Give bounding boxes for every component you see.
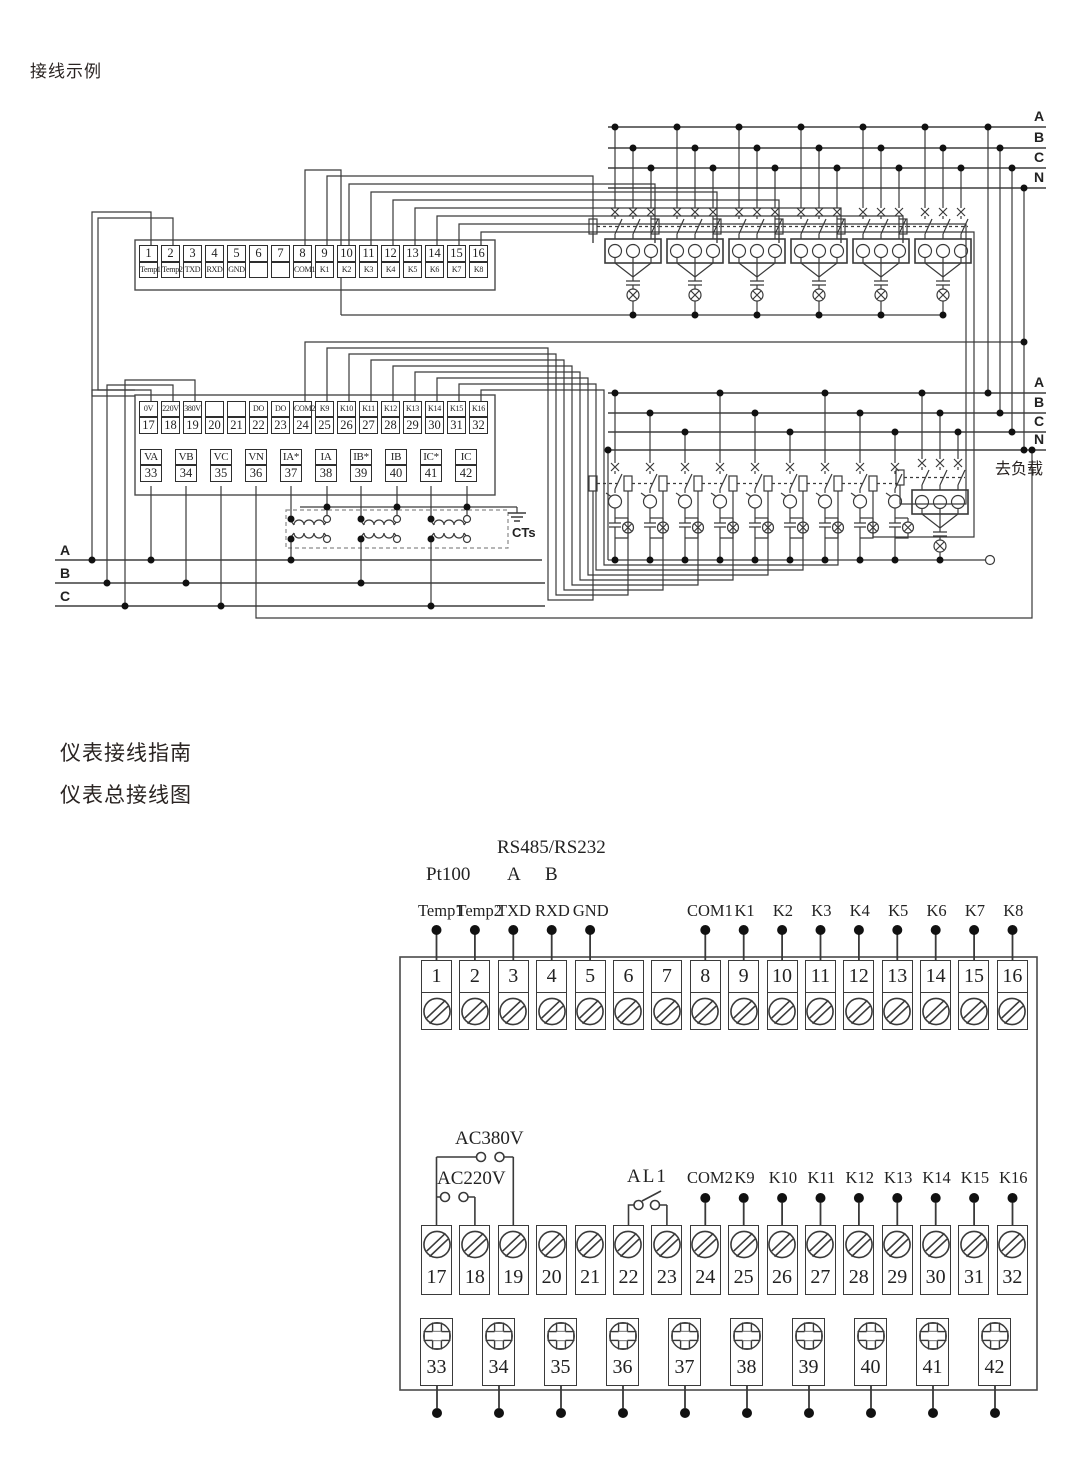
bus-label-b-mid: B <box>1034 394 1044 410</box>
terminal-number: 21 <box>575 1262 606 1295</box>
strip-1-16: 1 2 3 4 5 6 7 8 9 10 <box>421 960 1028 1030</box>
screw-terminal: 21 <box>575 1225 606 1295</box>
terminal-number: 8 <box>690 960 721 993</box>
cross-screw-icon <box>792 1318 825 1352</box>
screw-head-icon <box>690 1225 721 1262</box>
terminal-label: IB* <box>350 449 372 465</box>
screw-head-icon <box>421 1225 452 1262</box>
terminal-number: 10 <box>337 245 356 262</box>
screw-terminal: 2 <box>459 960 490 1030</box>
terminal-number: 21 <box>227 417 246 434</box>
screw-head-icon <box>920 1225 951 1262</box>
ac380v-label: AC380V <box>455 1128 524 1150</box>
current-terminal: 35 <box>544 1318 577 1386</box>
terminal-number: 17 <box>421 1262 452 1295</box>
terminal-row-33-42: VA 33 VB 34 VC 35 VN 36 IA* 37 IA 38 IB*… <box>140 449 477 482</box>
guide-title: 仪表接线指南 <box>60 737 192 767</box>
screw-head-icon <box>958 993 989 1030</box>
pin-label: K16 <box>994 1168 1032 1188</box>
terminal-label: K11 <box>359 401 378 417</box>
pin-label: K2 <box>764 901 802 921</box>
al1-contact <box>629 1191 667 1226</box>
pin-label: K1 <box>725 901 763 921</box>
terminal-number: 7 <box>651 960 682 993</box>
terminal-number: 5 <box>227 245 246 262</box>
terminal-label <box>227 401 246 417</box>
screw-head-icon <box>843 1225 874 1262</box>
screw-head-icon <box>613 1225 644 1262</box>
current-terminal: 41 <box>916 1318 949 1386</box>
terminal-number: 32 <box>997 1262 1028 1295</box>
screw-terminal: 31 <box>958 1225 989 1295</box>
terminal-number: 29 <box>403 417 422 434</box>
phase-label-b: B <box>60 565 70 581</box>
terminal-label: K10 <box>337 401 356 417</box>
terminal-number: 16 <box>469 245 488 262</box>
terminal-label: VA <box>140 449 162 465</box>
screw-head-icon <box>882 993 913 1030</box>
terminal-label: K15 <box>447 401 466 417</box>
current-terminal: 39 <box>792 1318 825 1386</box>
screw-head-icon <box>920 993 951 1030</box>
current-terminal: 37 <box>668 1318 701 1386</box>
pin-label: K6 <box>917 901 955 921</box>
terminal-number: 13 <box>403 245 422 262</box>
terminal-number: 8 <box>293 245 312 262</box>
terminal-number: 20 <box>536 1262 567 1295</box>
screw-head-icon <box>651 993 682 1030</box>
terminal-number: 35 <box>210 465 232 482</box>
screw-terminal: 30 <box>920 1225 951 1295</box>
screw-terminal: 24 <box>690 1225 721 1295</box>
terminal-cell: 4 RXD <box>205 245 224 278</box>
terminal-label: DO <box>249 401 268 417</box>
terminal-number: 2 <box>161 245 180 262</box>
terminal-label: 220V <box>161 401 180 417</box>
terminal-cell: IB 40 <box>385 449 407 482</box>
screw-head-icon <box>805 1225 836 1262</box>
cross-screw-icon <box>730 1318 763 1352</box>
terminal-cell: K14 30 <box>425 401 444 434</box>
terminal-cell: VC 35 <box>210 449 232 482</box>
terminal-label: IA <box>315 449 337 465</box>
cross-screw-icon <box>854 1318 887 1352</box>
terminal-number: 36 <box>606 1352 639 1386</box>
terminal-cell: IC* 41 <box>420 449 442 482</box>
screw-head-icon <box>690 993 721 1030</box>
current-terminal: 33 <box>420 1318 453 1386</box>
bus-label-n-mid: N <box>1034 431 1044 447</box>
terminal-number: 34 <box>482 1352 515 1386</box>
terminal-number: 3 <box>498 960 529 993</box>
bus-drop-dots <box>985 124 1028 454</box>
terminal-number: 27 <box>805 1262 836 1295</box>
terminal-number: 9 <box>315 245 334 262</box>
screw-terminal: 5 <box>575 960 606 1030</box>
terminal-label: DO <box>271 401 290 417</box>
terminal-number: 33 <box>420 1352 453 1386</box>
terminal-number: 4 <box>205 245 224 262</box>
left-phase-lines <box>55 560 545 606</box>
pin-label: GND <box>572 901 610 921</box>
terminal-number: 6 <box>249 245 268 262</box>
pin-label: K8 <box>994 901 1032 921</box>
screw-head-icon <box>536 993 567 1030</box>
terminal-number: 29 <box>882 1262 913 1295</box>
rs-a-label: A <box>507 864 521 886</box>
terminal-number: 28 <box>381 417 400 434</box>
terminal-number: 36 <box>245 465 267 482</box>
terminal-cell: IA 38 <box>315 449 337 482</box>
terminal-cell: 380V 19 <box>183 401 202 434</box>
screw-terminal: 18 <box>459 1225 490 1295</box>
terminal-number: 40 <box>854 1352 887 1386</box>
terminal-label: IC* <box>420 449 442 465</box>
cross-screw-icon <box>420 1318 453 1352</box>
pin-label: COM2 <box>687 1168 725 1188</box>
screw-terminal: 3 <box>498 960 529 1030</box>
terminal-label: K14 <box>425 401 444 417</box>
strip-17-32: 17 18 19 20 21 22 23 24 25 26 <box>421 1225 1028 1295</box>
terminal-number: 6 <box>613 960 644 993</box>
terminal-cell: 12 K4 <box>381 245 400 278</box>
terminal-number: 11 <box>359 245 378 262</box>
terminal-cell: 15 K7 <box>447 245 466 278</box>
screw-head-icon <box>728 993 759 1030</box>
screw-terminal: 27 <box>805 1225 836 1295</box>
terminal-label: K8 <box>469 262 488 278</box>
terminal-label: VB <box>175 449 197 465</box>
terminal-number: 42 <box>978 1352 1011 1386</box>
terminal-label: K16 <box>469 401 488 417</box>
diagram-title: 仪表总接线图 <box>60 779 192 809</box>
pin-label: K10 <box>764 1168 802 1188</box>
ct-units <box>291 520 467 538</box>
terminal-number: 38 <box>315 465 337 482</box>
terminal-number: 28 <box>843 1262 874 1295</box>
terminal-cell: 0V 17 <box>139 401 158 434</box>
terminal-label: VC <box>210 449 232 465</box>
page-title: 接线示例 <box>30 57 102 82</box>
terminal-label: K9 <box>315 401 334 417</box>
screw-terminal: 10 <box>767 960 798 1030</box>
terminal-cell: IC 42 <box>455 449 477 482</box>
screw-head-icon <box>843 993 874 1030</box>
terminal-number: 33 <box>140 465 162 482</box>
terminal-number: 24 <box>690 1262 721 1295</box>
terminal-number: 2 <box>459 960 490 993</box>
terminal-label: K5 <box>403 262 422 278</box>
terminal-number: 24 <box>293 417 312 434</box>
terminal-number: 15 <box>447 245 466 262</box>
terminal-cell: K13 29 <box>403 401 422 434</box>
terminal-label: IB <box>385 449 407 465</box>
screw-head-icon <box>997 993 1028 1030</box>
pin-label: K11 <box>802 1168 840 1188</box>
top-bus-lines <box>608 127 1046 450</box>
pin-label: K5 <box>879 901 917 921</box>
terminal-label: K12 <box>381 401 400 417</box>
starter-bank-top <box>589 127 971 309</box>
terminal-number: 11 <box>805 960 836 993</box>
cross-screw-icon <box>668 1318 701 1352</box>
screw-terminal: 8 <box>690 960 721 1030</box>
cross-screw-icon <box>916 1318 949 1352</box>
screw-terminal: 11 <box>805 960 836 1030</box>
screw-head-icon <box>805 993 836 1030</box>
ac220v-label: AC220V <box>437 1168 506 1190</box>
pin-label: K14 <box>917 1168 955 1188</box>
screw-terminal: 16 <box>997 960 1028 1030</box>
cross-screw-icon <box>544 1318 577 1352</box>
screw-terminal: 19 <box>498 1225 529 1295</box>
screw-head-icon <box>536 1225 567 1262</box>
terminal-cell: VN 36 <box>245 449 267 482</box>
terminal-row-1-16: 1 Temp1 2 Temp2 3 TXD 4 RXD 5 GND 6 7 8 … <box>139 245 488 278</box>
terminal-number: 30 <box>425 417 444 434</box>
terminal-number: 5 <box>575 960 606 993</box>
al1-label: AL1 <box>627 1166 668 1188</box>
terminal-cell: VB 34 <box>175 449 197 482</box>
screw-head-icon <box>498 993 529 1030</box>
pin-label: Temp1 <box>418 901 456 921</box>
terminal-number: 25 <box>728 1262 759 1295</box>
terminal-label: K3 <box>359 262 378 278</box>
terminal-number: 10 <box>767 960 798 993</box>
bus-label-b-top: B <box>1034 129 1044 145</box>
schematic-page: 接线示例 1 Temp1 2 Temp2 3 TXD 4 RXD 5 GND 6… <box>0 0 1080 1471</box>
phase-label-a: A <box>60 542 70 558</box>
terminal-label: GND <box>227 262 246 278</box>
screw-head-icon <box>767 1225 798 1262</box>
terminal-number: 42 <box>455 465 477 482</box>
terminal-cell: 3 TXD <box>183 245 202 278</box>
terminal-label: K7 <box>447 262 466 278</box>
terminal-number: 22 <box>249 417 268 434</box>
terminal-label: VN <box>245 449 267 465</box>
pin-label: TXD <box>495 901 533 921</box>
terminal-number: 19 <box>498 1262 529 1295</box>
terminal-cell: 20 <box>205 401 224 434</box>
terminal-label <box>271 262 290 278</box>
terminal-number: 38 <box>730 1352 763 1386</box>
branch-bank <box>589 393 968 560</box>
terminal-number: 39 <box>350 465 372 482</box>
terminal-number: 7 <box>271 245 290 262</box>
terminal-number: 15 <box>958 960 989 993</box>
terminal-label <box>205 401 224 417</box>
screw-head-icon <box>651 1225 682 1262</box>
terminal-cell: 14 K6 <box>425 245 444 278</box>
terminal-number: 25 <box>315 417 334 434</box>
terminal-number: 26 <box>767 1262 798 1295</box>
terminal-cell: 13 K5 <box>403 245 422 278</box>
terminal-label: K4 <box>381 262 400 278</box>
terminal-cell: K16 32 <box>469 401 488 434</box>
terminal-cell: DO 22 <box>249 401 268 434</box>
pin-label: K7 <box>956 901 994 921</box>
screw-head-icon <box>613 993 644 1030</box>
terminal-cell: K11 27 <box>359 401 378 434</box>
screw-head-icon <box>459 993 490 1030</box>
cts-label: CTs <box>512 525 536 540</box>
terminal-number: 19 <box>183 417 202 434</box>
terminal-number: 13 <box>882 960 913 993</box>
screw-head-icon <box>958 1225 989 1262</box>
screw-head-icon <box>728 1225 759 1262</box>
bus-label-n-top: N <box>1034 169 1044 185</box>
terminal-cell: 7 <box>271 245 290 278</box>
terminal-number: 31 <box>447 417 466 434</box>
current-terminal: 36 <box>606 1318 639 1386</box>
terminal-number: 20 <box>205 417 224 434</box>
pin-label: Temp2 <box>456 901 494 921</box>
cross-screw-icon <box>482 1318 515 1352</box>
terminal-label: K6 <box>425 262 444 278</box>
terminal-number: 41 <box>916 1352 949 1386</box>
screw-terminal: 26 <box>767 1225 798 1295</box>
current-terminal: 42 <box>978 1318 1011 1386</box>
terminal-number: 14 <box>920 960 951 993</box>
bus-drop-verticals <box>988 127 1024 450</box>
terminal-number: 40 <box>385 465 407 482</box>
terminal-row-17-32: 0V 17 220V 18 380V 19 20 21 DO 22 DO 23 … <box>139 401 488 434</box>
terminal-number: 12 <box>843 960 874 993</box>
terminal-number: 39 <box>792 1352 825 1386</box>
current-terminal: 40 <box>854 1318 887 1386</box>
phase-label-c: C <box>60 588 70 604</box>
starter-return-collector <box>341 309 943 315</box>
terminal-cell: COM2 24 <box>293 401 312 434</box>
terminal-label: K1 <box>315 262 334 278</box>
screw-terminal: 9 <box>728 960 759 1030</box>
screw-terminal: 13 <box>882 960 913 1030</box>
terminal-cell: K9 25 <box>315 401 334 434</box>
terminal-label: 0V <box>139 401 158 417</box>
screw-terminal: 23 <box>651 1225 682 1295</box>
terminal-label: K2 <box>337 262 356 278</box>
terminal-number: 37 <box>280 465 302 482</box>
screw-terminal: 28 <box>843 1225 874 1295</box>
screw-head-icon <box>459 1225 490 1262</box>
terminal-label: Temp2 <box>161 262 180 278</box>
terminal-cell: 5 GND <box>227 245 246 278</box>
terminal-cell: 10 K2 <box>337 245 356 278</box>
terminal-label: TXD <box>183 262 202 278</box>
screw-terminal: 25 <box>728 1225 759 1295</box>
terminal-number: 22 <box>613 1262 644 1295</box>
terminal-number: 17 <box>139 417 158 434</box>
to-load-label: 去负载 <box>995 455 1043 479</box>
terminal-number: 4 <box>536 960 567 993</box>
screw-terminal: 29 <box>882 1225 913 1295</box>
terminal-number: 23 <box>271 417 290 434</box>
screw-head-icon <box>421 993 452 1030</box>
terminal-number: 31 <box>958 1262 989 1295</box>
terminal-number: 41 <box>420 465 442 482</box>
screw-terminal: 14 <box>920 960 951 1030</box>
terminal-label: K13 <box>403 401 422 417</box>
terminal-cell: 11 K3 <box>359 245 378 278</box>
terminal-number: 18 <box>459 1262 490 1295</box>
pin-label: RXD <box>533 901 571 921</box>
current-terminal: 34 <box>482 1318 515 1386</box>
terminal-label <box>249 262 268 278</box>
pin-label: K13 <box>879 1168 917 1188</box>
screw-head-icon <box>767 993 798 1030</box>
terminal-number: 18 <box>161 417 180 434</box>
terminal-cell: VA 33 <box>140 449 162 482</box>
screw-head-icon <box>575 993 606 1030</box>
screw-head-icon <box>498 1225 529 1262</box>
terminal-number: 16 <box>997 960 1028 993</box>
screw-terminal: 17 <box>421 1225 452 1295</box>
terminal-number: 9 <box>728 960 759 993</box>
terminal-cell: 21 <box>227 401 246 434</box>
pin-label: K12 <box>841 1168 879 1188</box>
relay-pin-labels-top: COM1K1K2K3K4K5K6K7K8 <box>687 901 1033 921</box>
current-terminal: 38 <box>730 1318 763 1386</box>
screw-terminal: 32 <box>997 1225 1028 1295</box>
pin-label: COM1 <box>687 901 725 921</box>
terminal-number: 23 <box>651 1262 682 1295</box>
terminal-cell: IA* 37 <box>280 449 302 482</box>
terminal-cell: 1 Temp1 <box>139 245 158 278</box>
screw-terminal: 6 <box>613 960 644 1030</box>
rs485-rs232-label: RS485/RS232 <box>497 837 606 859</box>
terminal-number: 37 <box>668 1352 701 1386</box>
screw-head-icon <box>997 1225 1028 1262</box>
bottom-row2-pins <box>705 1203 1012 1226</box>
terminal-number: 1 <box>421 960 452 993</box>
terminal-label: 380V <box>183 401 202 417</box>
terminal-cell: K15 31 <box>447 401 466 434</box>
screw-terminal: 22 <box>613 1225 644 1295</box>
terminal-label: COM2 <box>293 401 312 417</box>
terminal-cell: K12 28 <box>381 401 400 434</box>
terminal-cell: IB* 39 <box>350 449 372 482</box>
terminal-number: 1 <box>139 245 158 262</box>
top-pin-labels: Temp1Temp2TXDRXDGND <box>418 901 610 921</box>
terminal-cell: 6 <box>249 245 268 278</box>
terminal-number: 30 <box>920 1262 951 1295</box>
terminal-label: IA* <box>280 449 302 465</box>
screw-terminal: 15 <box>958 960 989 1030</box>
screw-terminal: 7 <box>651 960 682 1030</box>
terminal-number: 3 <box>183 245 202 262</box>
screw-terminal: 20 <box>536 1225 567 1295</box>
terminal-cell: 16 K8 <box>469 245 488 278</box>
terminal-label: COM1 <box>293 262 312 278</box>
terminal-number: 14 <box>425 245 444 262</box>
screw-head-icon <box>882 1225 913 1262</box>
bus-label-c-mid: C <box>1034 413 1044 429</box>
terminal-label: IC <box>455 449 477 465</box>
screw-head-icon <box>575 1225 606 1262</box>
cross-screw-icon <box>978 1318 1011 1352</box>
bus-label-c-top: C <box>1034 149 1044 165</box>
terminal-number: 34 <box>175 465 197 482</box>
pin-label: K15 <box>956 1168 994 1188</box>
strip-33-42: 33 34 35 36 37 38 39 40 41 42 <box>420 1318 1011 1386</box>
terminal-number: 35 <box>544 1352 577 1386</box>
terminal-cell: K10 26 <box>337 401 356 434</box>
terminal-label: RXD <box>205 262 224 278</box>
terminal-number: 32 <box>469 417 488 434</box>
pin-label: K3 <box>802 901 840 921</box>
terminal-number: 27 <box>359 417 378 434</box>
pt100-label: Pt100 <box>426 864 470 886</box>
